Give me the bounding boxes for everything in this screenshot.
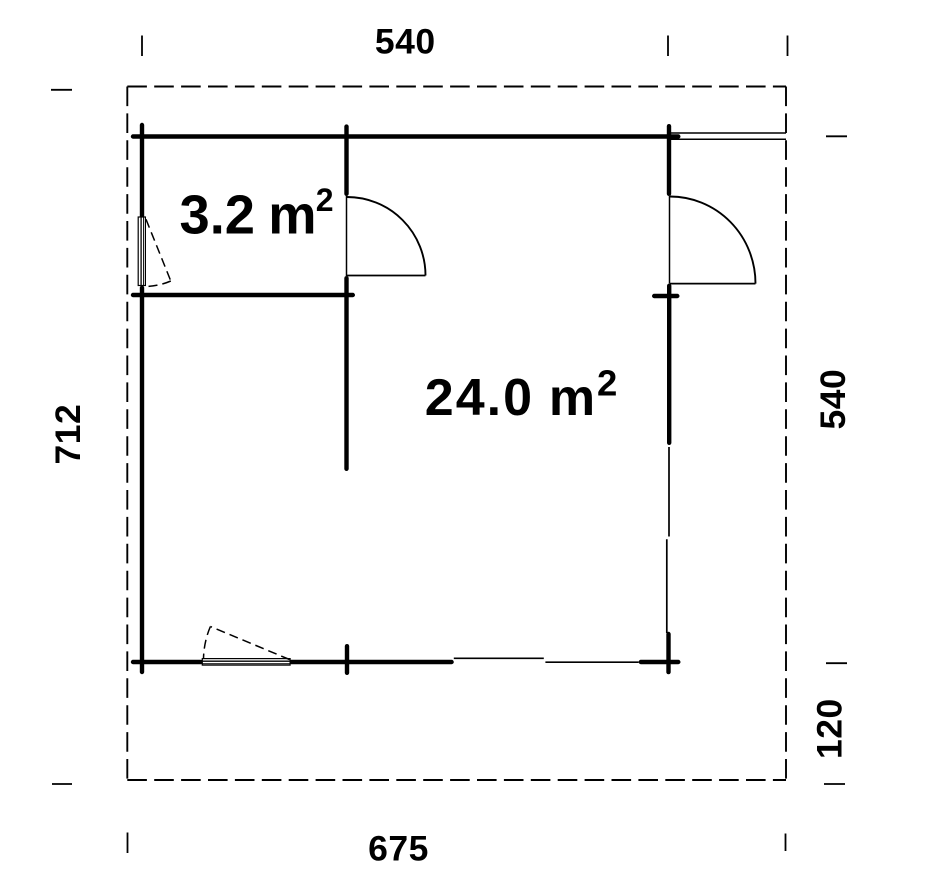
svg-text:712: 712 [48,404,88,465]
svg-text:24.0m2: 24.0m2 [425,362,618,426]
svg-text:675: 675 [368,829,429,869]
svg-text:120: 120 [810,698,850,759]
svg-text:540: 540 [375,22,436,62]
svg-text:540: 540 [813,369,853,430]
